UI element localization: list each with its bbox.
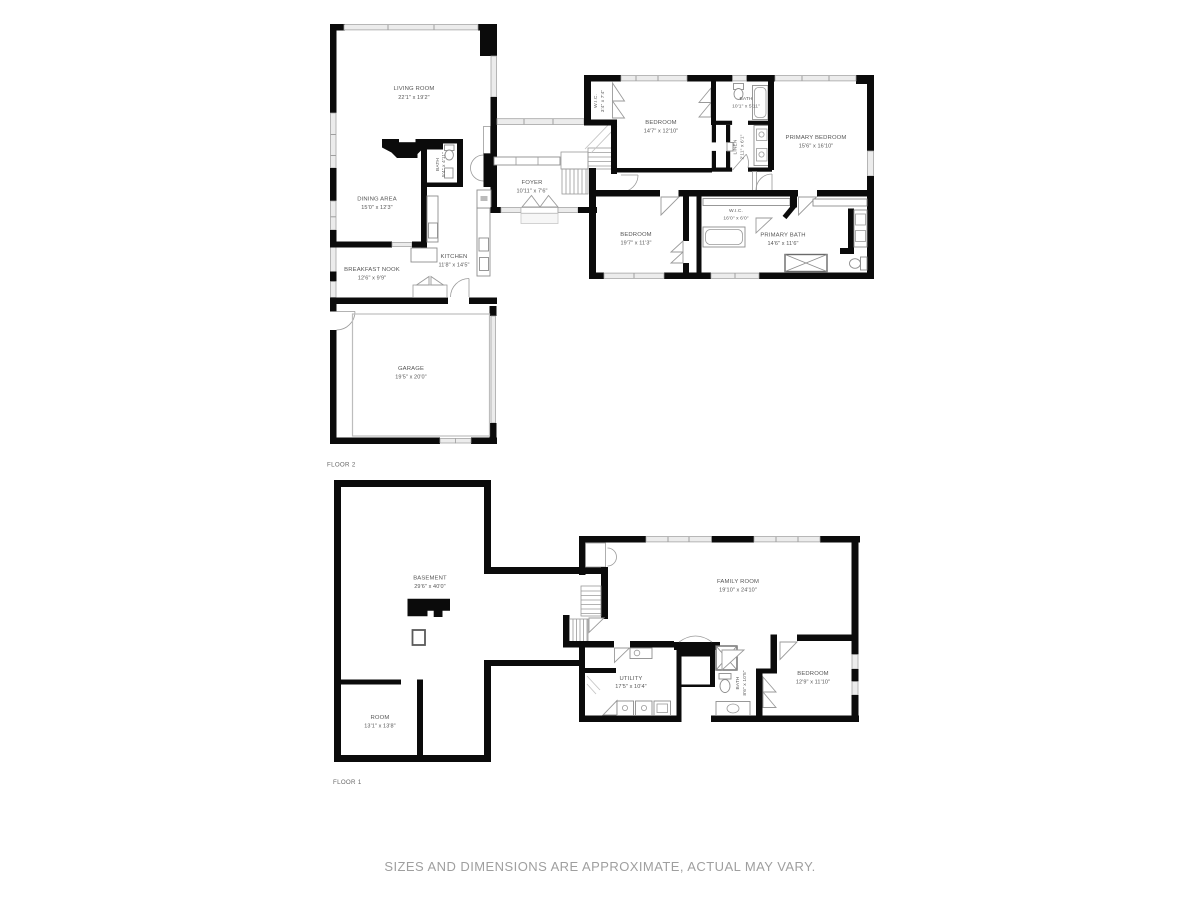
svg-text:W.I.C.: W.I.C. <box>729 208 743 214</box>
svg-text:BEDROOM: BEDROOM <box>797 671 829 677</box>
svg-text:PRIMARY BEDROOM: PRIMARY BEDROOM <box>786 135 847 141</box>
svg-text:2'11" x 6'1": 2'11" x 6'1" <box>740 134 746 159</box>
svg-text:GARAGE: GARAGE <box>398 366 424 372</box>
svg-text:BATH: BATH <box>739 96 752 102</box>
svg-text:FOYER: FOYER <box>521 180 542 186</box>
svg-text:LIVING ROOM: LIVING ROOM <box>394 86 435 92</box>
svg-text:8'6" x 10'5": 8'6" x 10'5" <box>742 670 748 695</box>
svg-text:PRIMARY BATH: PRIMARY BATH <box>760 233 805 239</box>
svg-text:DINING AREA: DINING AREA <box>357 197 397 203</box>
svg-text:BATH: BATH <box>735 676 741 689</box>
svg-text:12'9" x 11'10": 12'9" x 11'10" <box>796 680 830 686</box>
svg-text:14'7" x 12'10": 14'7" x 12'10" <box>644 129 679 135</box>
svg-text:BREAKFAST NOOK: BREAKFAST NOOK <box>344 267 400 273</box>
svg-text:15'0" x 12'3": 15'0" x 12'3" <box>361 205 392 211</box>
svg-text:17'5" x 10'4": 17'5" x 10'4" <box>615 684 646 690</box>
svg-text:19'10" x 24'10": 19'10" x 24'10" <box>719 588 757 594</box>
svg-text:11'8" x 14'5": 11'8" x 14'5" <box>438 263 469 269</box>
svg-text:FAMILY ROOM: FAMILY ROOM <box>717 579 759 585</box>
svg-text:16'0" x 6'0": 16'0" x 6'0" <box>723 216 748 222</box>
svg-text:13'1" x 13'8": 13'1" x 13'8" <box>364 724 395 730</box>
svg-text:29'6" x 40'0": 29'6" x 40'0" <box>414 584 445 590</box>
svg-text:W.I.C.: W.I.C. <box>593 94 599 108</box>
svg-text:3'4" x 7'4": 3'4" x 7'4" <box>600 90 606 113</box>
svg-text:SIZES AND DIMENSIONS ARE APPRO: SIZES AND DIMENSIONS ARE APPROXIMATE, AC… <box>384 859 815 874</box>
svg-text:BEDROOM: BEDROOM <box>620 232 652 238</box>
svg-text:15'6" x 16'10": 15'6" x 16'10" <box>799 144 834 150</box>
svg-text:12'6" x 9'9": 12'6" x 9'9" <box>358 276 386 282</box>
svg-text:LINEN: LINEN <box>733 139 739 154</box>
svg-text:19'7" x 11'3": 19'7" x 11'3" <box>620 241 651 247</box>
svg-text:5'4" x 4'11": 5'4" x 4'11" <box>441 152 447 177</box>
svg-text:UTILITY: UTILITY <box>620 676 643 682</box>
svg-text:FLOOR 1: FLOOR 1 <box>333 779 362 786</box>
svg-text:22'1" x 19'2": 22'1" x 19'2" <box>398 95 429 101</box>
svg-text:ROOM: ROOM <box>371 715 390 721</box>
svg-text:14'6" x 11'6": 14'6" x 11'6" <box>767 241 798 247</box>
svg-text:10'1" x 5'11": 10'1" x 5'11" <box>732 104 760 110</box>
svg-text:BASEMENT: BASEMENT <box>413 576 447 582</box>
svg-text:KITCHEN: KITCHEN <box>441 254 468 260</box>
svg-text:19'5" x 20'0": 19'5" x 20'0" <box>395 375 426 381</box>
svg-text:10'11" x 7'6": 10'11" x 7'6" <box>516 189 547 195</box>
svg-text:FLOOR 2: FLOOR 2 <box>327 462 356 469</box>
svg-text:BEDROOM: BEDROOM <box>645 120 677 126</box>
svg-text:BATH: BATH <box>435 158 441 171</box>
